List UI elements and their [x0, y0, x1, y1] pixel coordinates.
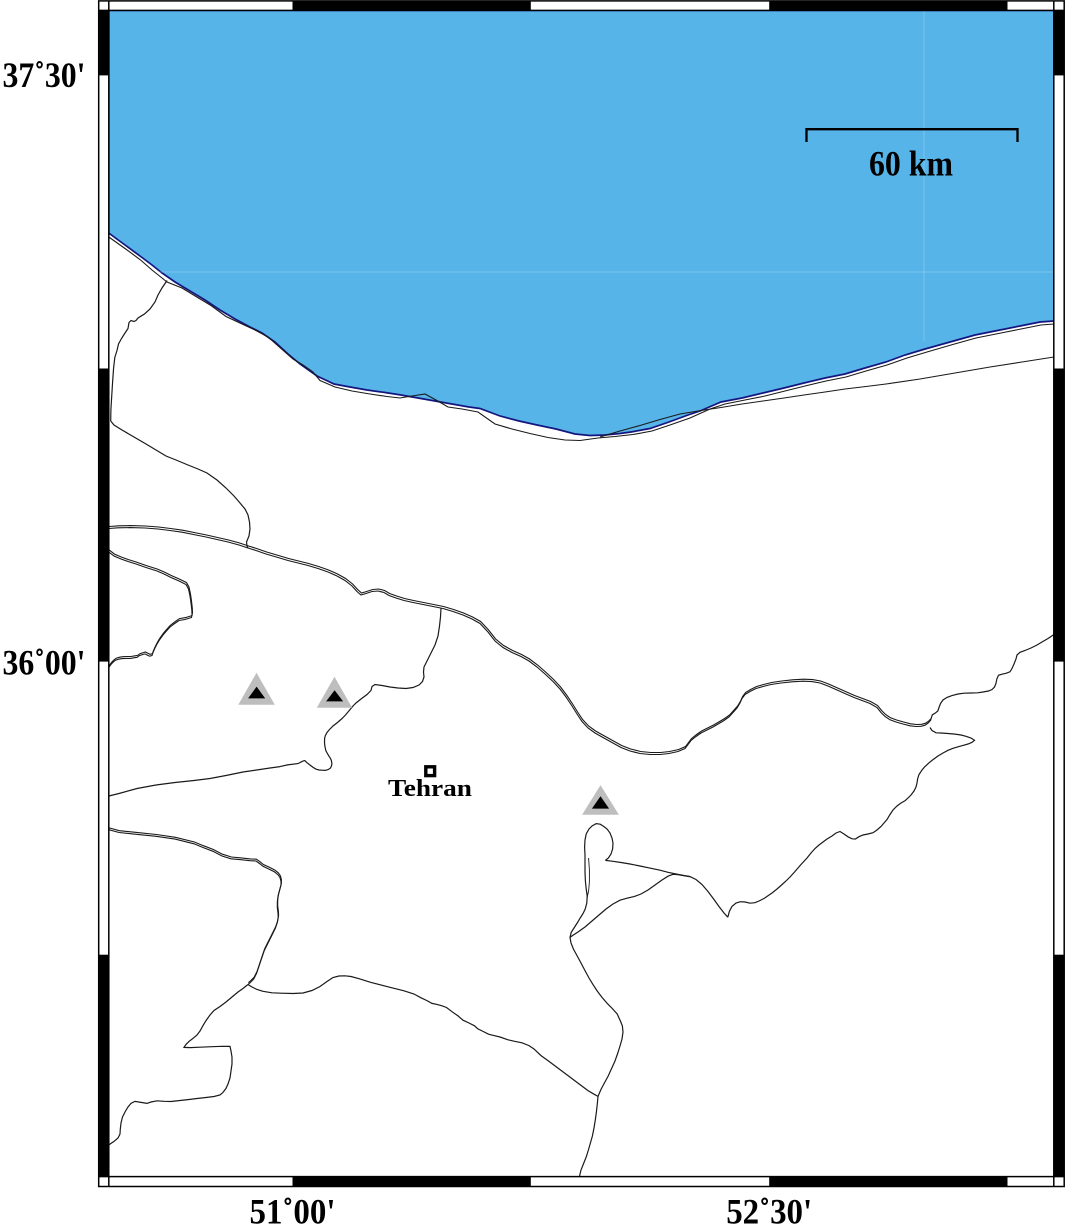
- svg-text:37˚30': 37˚30': [3, 55, 86, 95]
- svg-text:52˚30': 52˚30': [726, 1192, 812, 1225]
- svg-text:Tehran: Tehran: [388, 775, 472, 802]
- svg-text:60 km: 60 km: [869, 144, 953, 184]
- svg-text:36˚00': 36˚00': [3, 643, 86, 683]
- svg-text:51˚00': 51˚00': [250, 1192, 336, 1225]
